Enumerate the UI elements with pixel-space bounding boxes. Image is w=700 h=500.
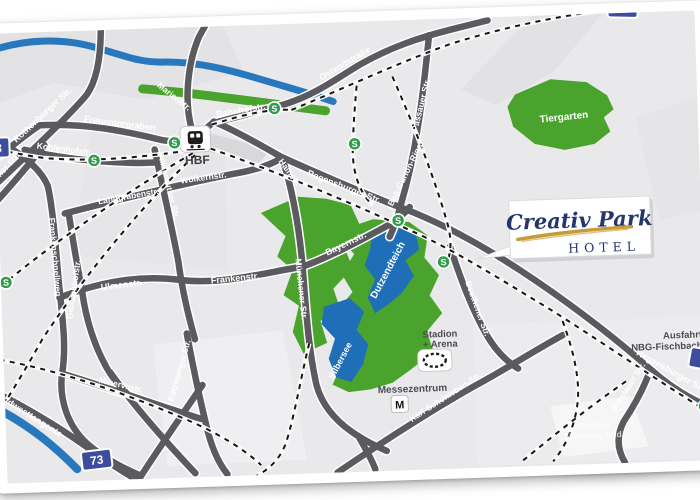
svg-text:S: S: [3, 278, 9, 288]
sbahn-badge: S: [348, 137, 361, 150]
sbahn-badge: S: [0, 276, 13, 289]
metro-m-icon: M: [395, 399, 405, 411]
badge-a73-number: 73: [89, 452, 104, 468]
autobahn-badge-a3-top: 3: [607, 10, 637, 17]
sbahn-badge: S: [391, 214, 404, 227]
svg-text:S: S: [171, 138, 177, 148]
messezentrum-label: Messezentrum: [378, 383, 448, 396]
hotel-logo-subtitle: HOTEL: [568, 238, 640, 255]
sbahn-badge: S: [87, 154, 100, 167]
klinikum-label-line2: Nürnberg Süd: [565, 429, 622, 441]
svg-text:S: S: [91, 156, 97, 166]
sbahn-badge: S: [168, 136, 181, 149]
badge-a3-top-number: 3: [619, 10, 626, 15]
svg-text:S: S: [395, 216, 401, 226]
city-map-svg: Rothenburger Str. Frauentorgraben Kohlen…: [0, 10, 700, 483]
svg-text:S: S: [351, 139, 357, 149]
hbf-label: HBF: [185, 153, 210, 168]
sbahn-badge: S: [437, 255, 450, 268]
sbahn-badge: S: [268, 102, 281, 115]
autobahn-badge-a3-left: 3: [0, 137, 10, 158]
svg-text:S: S: [440, 257, 446, 267]
map-photo-frame: Rothenburger Str. Frauentorgraben Kohlen…: [0, 0, 700, 494]
autobahn-badge-a73: 73: [81, 448, 113, 470]
hbf-station: HBF: [180, 126, 211, 168]
screenshot-root: Rothenburger Str. Frauentorgraben Kohlen…: [0, 0, 700, 500]
svg-text:S: S: [271, 104, 277, 114]
map-canvas: Rothenburger Str. Frauentorgraben Kohlen…: [0, 10, 700, 483]
